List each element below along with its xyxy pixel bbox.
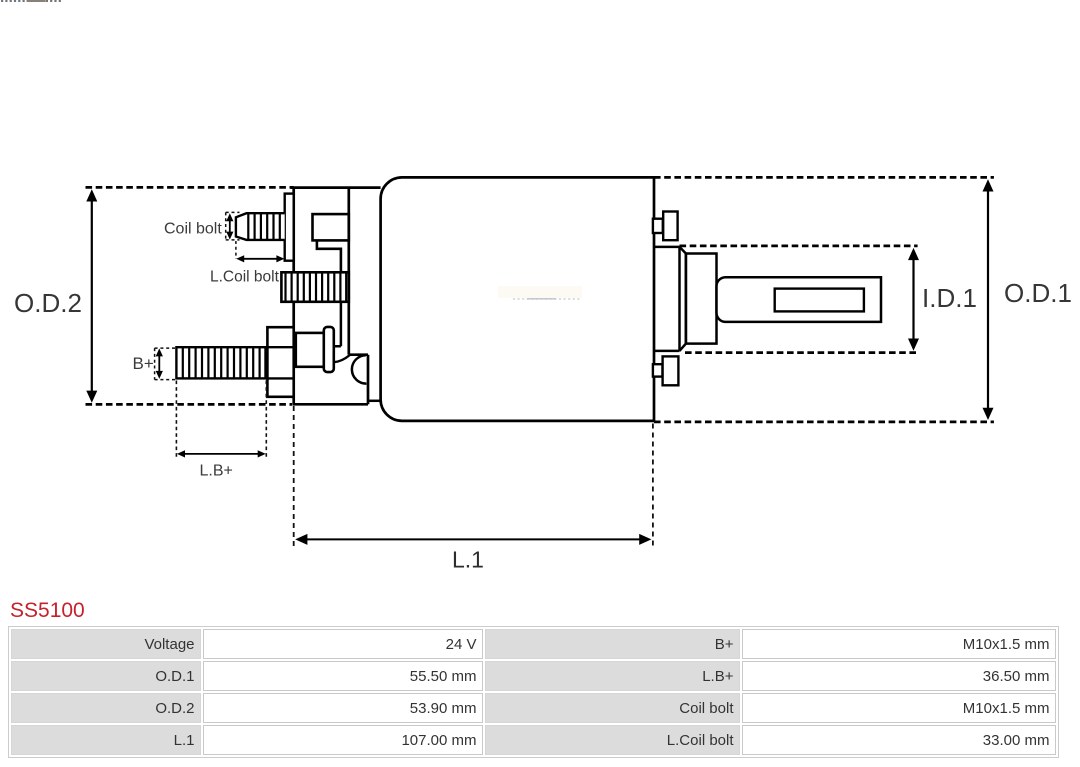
svg-text:B+: B+ — [133, 354, 154, 373]
svg-text:O.D.2: O.D.2 — [14, 288, 82, 318]
svg-text:I.D.1: I.D.1 — [922, 283, 977, 313]
svg-text:O.D.1: O.D.1 — [1004, 278, 1072, 308]
svg-text:L.Coil bolt: L.Coil bolt — [210, 269, 280, 286]
svg-text:L.B+: L.B+ — [200, 463, 233, 480]
svg-text:Coil bolt: Coil bolt — [164, 221, 222, 238]
svg-text:L.1: L.1 — [452, 547, 484, 573]
